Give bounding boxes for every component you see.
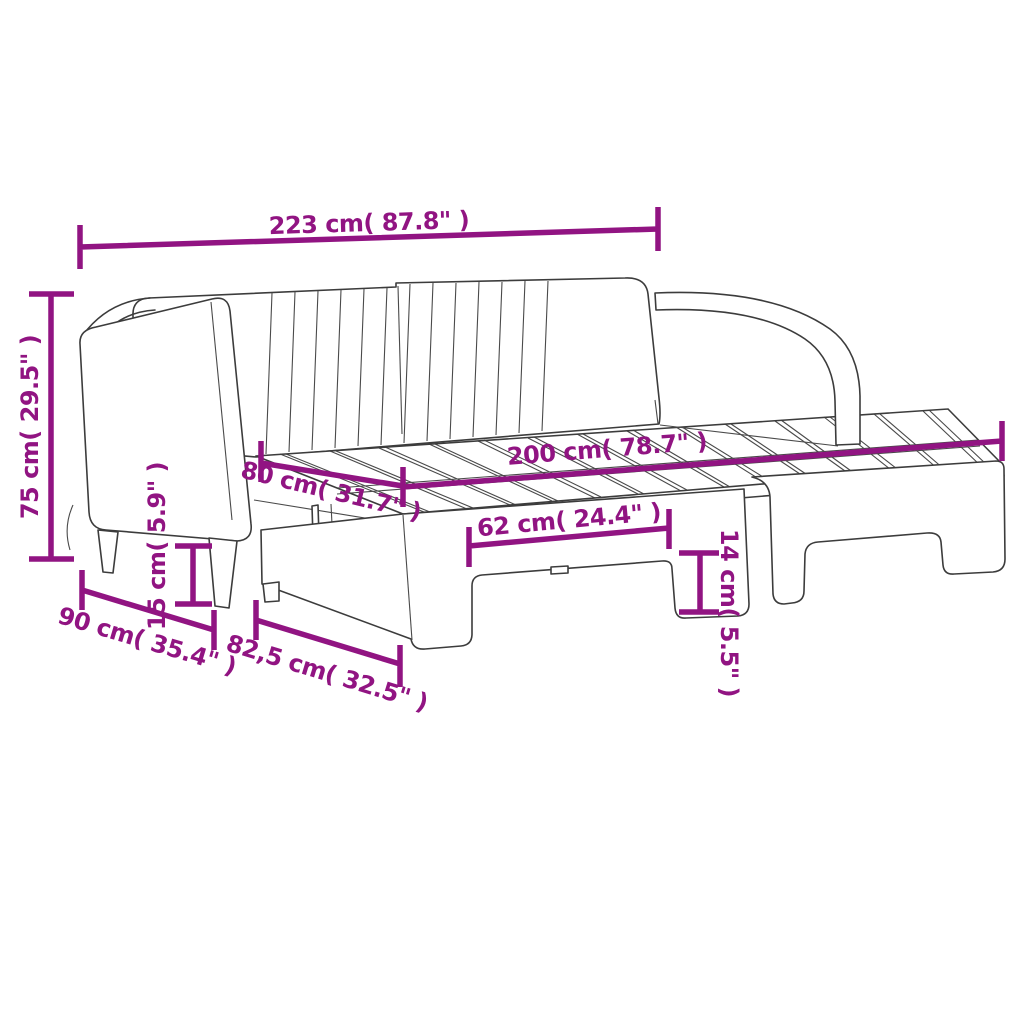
dimension-diagram: 223 cm( 87.8" ) 75 cm( 29.5" ) 200 cm( 7…: [0, 0, 1024, 1024]
trundle-left-leg: [263, 582, 279, 602]
bed-frame-right-panel: [752, 461, 1005, 604]
armrest-front-leg: [209, 538, 237, 608]
armrest-back-leg: [98, 530, 118, 573]
dimension-trundle-leg-height-label: 14 cm( 5.5" ): [715, 529, 743, 697]
dimension-leg-height-label: 15 cm( 5.9" ): [143, 462, 171, 630]
trundle-latch: [551, 566, 568, 574]
dimension-leg-height-line: [175, 546, 212, 604]
dimension-total-height-label: 75 cm( 29.5" ): [16, 335, 44, 519]
